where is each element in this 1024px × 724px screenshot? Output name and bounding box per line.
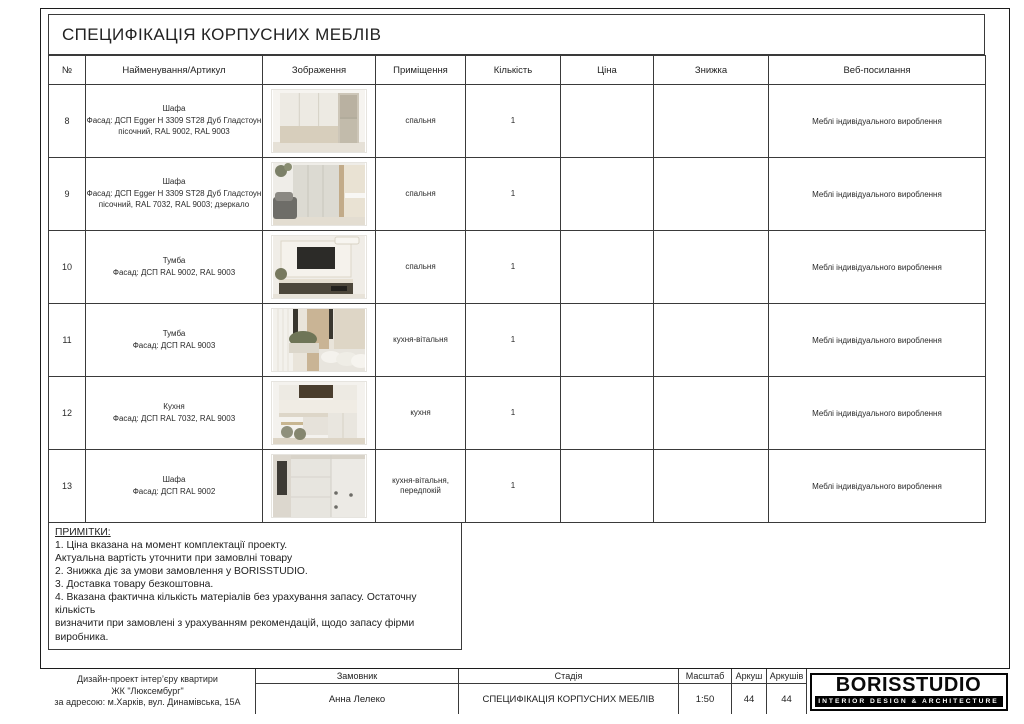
item-price: [561, 231, 654, 304]
item-room: спальня: [376, 158, 466, 231]
item-price: [561, 450, 654, 523]
sheet-label: Аркуш: [732, 669, 767, 684]
item-qty: 1: [466, 304, 561, 377]
logo-tagline: INTERIOR DESIGN & ARCHITECTURE: [815, 696, 1003, 707]
scale-label: Масштаб: [679, 669, 732, 684]
project-line: за адресою: м.Харків, вул. Динамівська, …: [54, 697, 240, 709]
item-name: Шафа: [86, 177, 262, 188]
item-name: Кухня: [86, 402, 262, 413]
project-line: Дизайн-проект інтер’єру квартири: [77, 674, 218, 686]
item-price: [561, 304, 654, 377]
item-description: Фасад: ДСП RAL 9002: [86, 487, 262, 498]
item-image-cell: [263, 450, 376, 523]
note-line: Актуальна вартість уточнити при замовлні…: [55, 552, 455, 565]
item-name-cell: Шафа Фасад: ДСП RAL 9002: [86, 450, 263, 523]
table-row: 10 Тумба Фасад: ДСП RAL 9002, RAL 9003: [49, 231, 986, 304]
item-number: 12: [49, 377, 86, 450]
item-qty: 1: [466, 158, 561, 231]
table-row: 13 Шафа Фасад: ДСП RAL 9002: [49, 450, 986, 523]
column-header-price: Ціна: [561, 56, 654, 85]
item-room: спальня: [376, 231, 466, 304]
stage-label: Стадія: [459, 669, 679, 684]
item-weblink: Меблі індивідуального вироблення: [769, 85, 986, 158]
cabinet-living-photo: [271, 308, 367, 372]
item-description: Фасад: ДСП RAL 9002, RAL 9003: [86, 268, 262, 279]
note-line: 4. Вказана фактична кількість матеріалів…: [55, 591, 455, 617]
item-number: 8: [49, 85, 86, 158]
item-price: [561, 85, 654, 158]
project-line: ЖК "Люксембург": [111, 686, 183, 698]
item-description: Фасад: ДСП Egger H 3309 ST28 Дуб Гладсто…: [86, 116, 262, 138]
column-header-qty: Кількість: [466, 56, 561, 85]
kitchen-photo: [271, 381, 367, 445]
wardrobe-mirror-photo: [271, 162, 367, 226]
sheets-total: 44: [767, 684, 807, 714]
hallway-wardrobe-photo: [271, 454, 367, 518]
page-title-text: СПЕЦИФІКАЦІЯ КОРПУСНИХ МЕБЛІВ: [62, 25, 381, 45]
table-row: 12 Кухня Фасад: ДСП RAL 7032, RAL 9003: [49, 377, 986, 450]
notes-heading: ПРИМІТКИ:: [55, 526, 455, 539]
scale-value: 1:50: [679, 684, 732, 714]
item-weblink: Меблі індивідуального вироблення: [769, 304, 986, 377]
note-line: визначити при замовлені з урахуванням ре…: [55, 617, 455, 643]
item-number: 10: [49, 231, 86, 304]
title-block-footer: Дизайн-проект інтер’єру квартири ЖК "Люк…: [40, 668, 1010, 714]
note-line: 3. Доставка товару безкоштовна.: [55, 578, 455, 591]
item-room: кухня-вітальня, передпокій: [376, 450, 466, 523]
item-qty: 1: [466, 231, 561, 304]
table-row: 9 Шафа Фасад: ДСП Egger H 3309 ST28 Дуб …: [49, 158, 986, 231]
borisstudio-logo: BORISSTUDIO INTERIOR DESIGN & ARCHITECTU…: [810, 673, 1008, 711]
item-weblink: Меблі індивідуального вироблення: [769, 450, 986, 523]
item-image-cell: [263, 158, 376, 231]
sheet-number: 44: [732, 684, 767, 714]
specification-sheet: СПЕЦИФІКАЦІЯ КОРПУСНИХ МЕБЛІВ № Найменув…: [0, 0, 1024, 724]
item-discount: [654, 158, 769, 231]
item-price: [561, 158, 654, 231]
item-name-cell: Шафа Фасад: ДСП Egger H 3309 ST28 Дуб Гл…: [86, 85, 263, 158]
item-qty: 1: [466, 85, 561, 158]
note-line: 1. Ціна вказана на момент комплектації п…: [55, 539, 455, 552]
note-line: 2. Знижка діє за умови замовлення у BORI…: [55, 565, 455, 578]
item-name: Шафа: [86, 104, 262, 115]
item-name: Шафа: [86, 475, 262, 486]
customer-name: Анна Лелеко: [256, 684, 459, 714]
item-price: [561, 377, 654, 450]
item-image-cell: [263, 377, 376, 450]
item-room: кухня: [376, 377, 466, 450]
item-name-cell: Тумба Фасад: ДСП RAL 9003: [86, 304, 263, 377]
customer-label: Замовник: [256, 669, 459, 684]
item-image-cell: [263, 85, 376, 158]
column-header-image: Зображення: [263, 56, 376, 85]
item-name: Тумба: [86, 256, 262, 267]
project-info: Дизайн-проект інтер’єру квартири ЖК "Люк…: [40, 669, 256, 714]
item-name-cell: Тумба Фасад: ДСП RAL 9002, RAL 9003: [86, 231, 263, 304]
item-description: Фасад: ДСП RAL 7032, RAL 9003: [86, 414, 262, 425]
column-header-discount: Знижка: [654, 56, 769, 85]
item-discount: [654, 304, 769, 377]
item-room: спальня: [376, 85, 466, 158]
tv-stand-photo: [271, 235, 367, 299]
item-qty: 1: [466, 450, 561, 523]
item-number: 11: [49, 304, 86, 377]
page-title: СПЕЦИФІКАЦІЯ КОРПУСНИХ МЕБЛІВ: [48, 14, 985, 55]
item-weblink: Меблі індивідуального вироблення: [769, 377, 986, 450]
item-name-cell: Кухня Фасад: ДСП RAL 7032, RAL 9003: [86, 377, 263, 450]
sheets-total-label: Аркушів: [767, 669, 807, 684]
item-name-cell: Шафа Фасад: ДСП Egger H 3309 ST28 Дуб Гл…: [86, 158, 263, 231]
notes-block: ПРИМІТКИ: 1. Ціна вказана на момент комп…: [48, 522, 462, 650]
item-name: Тумба: [86, 329, 262, 340]
item-qty: 1: [466, 377, 561, 450]
item-weblink: Меблі індивідуального вироблення: [769, 231, 986, 304]
item-image-cell: [263, 304, 376, 377]
item-discount: [654, 231, 769, 304]
specification-table: № Найменування/Артикул Зображення Приміщ…: [48, 55, 986, 523]
table-header-row: № Найменування/Артикул Зображення Приміщ…: [49, 56, 986, 85]
item-room: кухня-вітальня: [376, 304, 466, 377]
column-header-name: Найменування/Артикул: [86, 56, 263, 85]
item-discount: [654, 377, 769, 450]
table-row: 8 Шафа Фасад: ДСП Egger H 3309 ST28 Дуб …: [49, 85, 986, 158]
item-discount: [654, 85, 769, 158]
wardrobe-bedroom-photo: [271, 89, 367, 153]
column-header-num: №: [49, 56, 86, 85]
studio-logo: BORISSTUDIO INTERIOR DESIGN & ARCHITECTU…: [807, 669, 1010, 714]
item-image-cell: [263, 231, 376, 304]
item-description: Фасад: ДСП RAL 9003: [86, 341, 262, 352]
item-number: 9: [49, 158, 86, 231]
column-header-room: Приміщення: [376, 56, 466, 85]
item-discount: [654, 450, 769, 523]
item-weblink: Меблі індивідуального вироблення: [769, 158, 986, 231]
column-header-weblink: Веб-посилання: [769, 56, 986, 85]
table-row: 11 Тумба Фасад: ДСП RAL 9003: [49, 304, 986, 377]
item-description: Фасад: ДСП Egger H 3309 ST28 Дуб Гладсто…: [86, 189, 262, 211]
stage-value: СПЕЦИФІКАЦІЯ КОРПУСНИХ МЕБЛІВ: [459, 684, 679, 714]
item-number: 13: [49, 450, 86, 523]
logo-wordmark: BORISSTUDIO: [812, 675, 1006, 696]
